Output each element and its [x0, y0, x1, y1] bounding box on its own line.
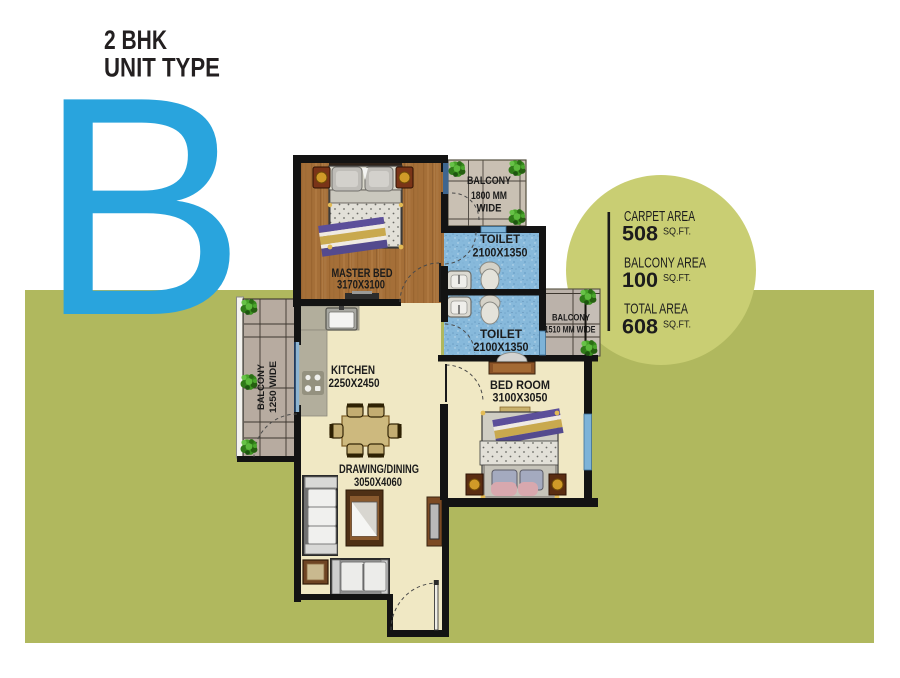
svg-text:3170X3100: 3170X3100 [337, 280, 385, 292]
svg-text:2250X2450: 2250X2450 [329, 378, 380, 390]
svg-text:SQ.FT.: SQ.FT. [663, 319, 691, 331]
svg-text:TOILET: TOILET [480, 329, 522, 341]
svg-text:SQ.FT.: SQ.FT. [663, 226, 691, 238]
svg-text:2100X1350: 2100X1350 [474, 342, 529, 354]
svg-text:3050X4060: 3050X4060 [354, 477, 402, 489]
svg-text:1510 MM WIDE: 1510 MM WIDE [545, 325, 596, 335]
svg-text:WIDE: WIDE [477, 203, 502, 215]
svg-text:100: 100 [622, 268, 658, 292]
svg-text:BALCONY: BALCONY [552, 313, 590, 323]
svg-text:SQ.FT.: SQ.FT. [663, 272, 691, 284]
svg-text:1250 WIDE: 1250 WIDE [268, 361, 279, 413]
svg-text:508: 508 [622, 222, 658, 246]
svg-text:BALCONY: BALCONY [467, 175, 512, 187]
svg-text:TOILET: TOILET [480, 234, 520, 246]
svg-text:2100X1350: 2100X1350 [473, 248, 528, 260]
svg-text:2 BHK: 2 BHK [104, 25, 167, 55]
svg-text:3100X3050: 3100X3050 [493, 393, 548, 405]
svg-text:DRAWING/DINING: DRAWING/DINING [339, 464, 419, 476]
svg-text:KITCHEN: KITCHEN [331, 365, 375, 377]
svg-text:MASTER BED: MASTER BED [332, 268, 393, 280]
svg-text:608: 608 [622, 315, 658, 339]
svg-text:BALCONY: BALCONY [256, 363, 267, 410]
svg-text:UNIT TYPE: UNIT TYPE [104, 53, 220, 83]
svg-text:1800 MM: 1800 MM [471, 190, 507, 202]
svg-text:BED ROOM: BED ROOM [490, 380, 550, 392]
svg-text:B: B [38, 33, 246, 381]
